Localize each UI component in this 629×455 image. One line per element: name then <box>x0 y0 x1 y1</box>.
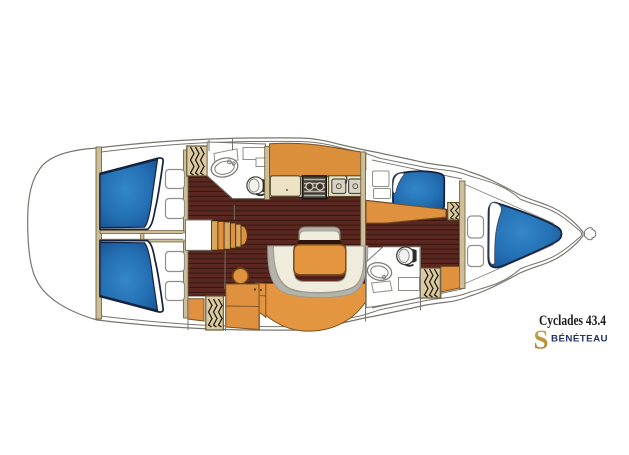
svg-text:BÉNÉTEAU: BÉNÉTEAU <box>551 334 608 345</box>
svg-text:Cyclades 43.4: Cyclades 43.4 <box>539 313 606 329</box>
svg-text:S: S <box>534 325 549 355</box>
